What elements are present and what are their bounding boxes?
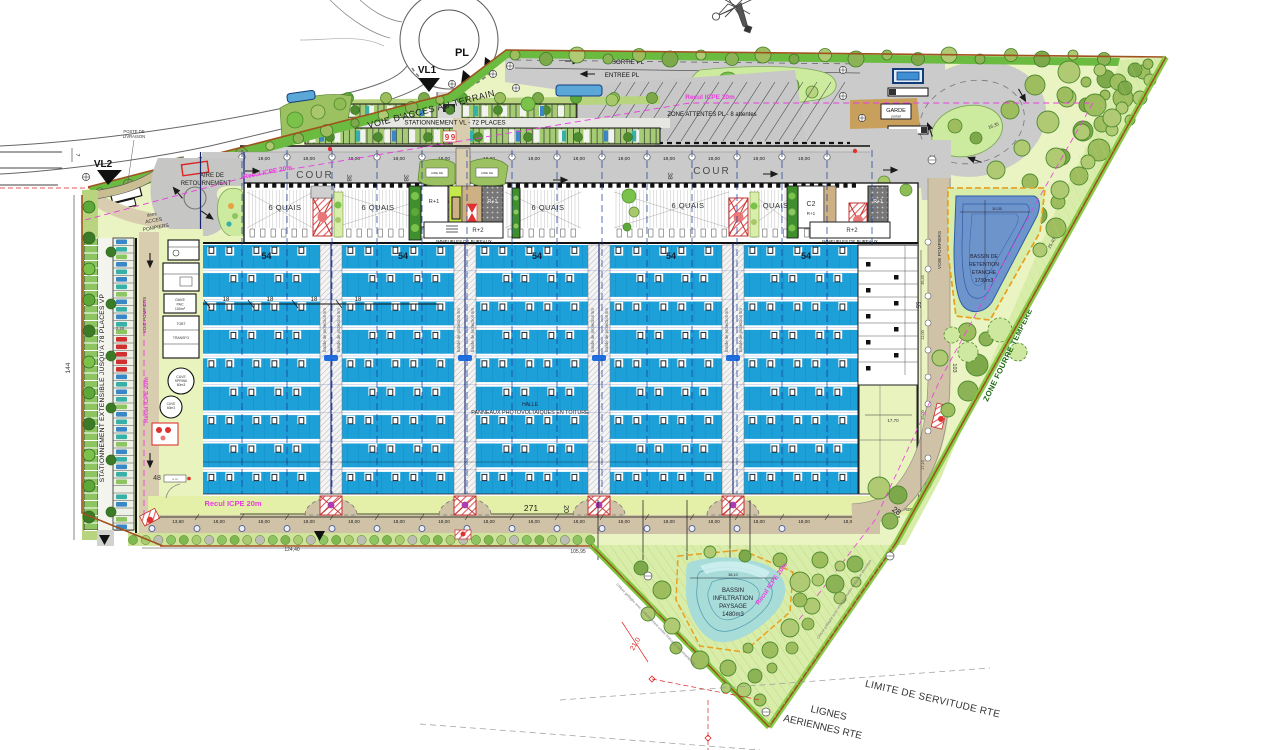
- svg-text:6 QUAIS: 6 QUAIS: [755, 201, 788, 210]
- svg-text:VL1: VL1: [418, 65, 437, 76]
- svg-text:18,00: 18,00: [303, 156, 315, 162]
- svg-text:u m: u m: [172, 477, 178, 481]
- svg-text:AIRE DE: AIRE DE: [200, 173, 224, 179]
- svg-text:18,00: 18,00: [438, 519, 450, 524]
- svg-text:6 QUAIS: 6 QUAIS: [361, 203, 394, 212]
- svg-text:portail: portail: [891, 115, 900, 119]
- svg-text:ZONE ATTENTES PL - 8 attentes: ZONE ATTENTES PL - 8 attentes: [667, 112, 756, 118]
- svg-text:6 QUAIS: 6 QUAIS: [671, 201, 704, 210]
- svg-text:12,00: 12,00: [921, 330, 925, 340]
- svg-text:BASSIN: BASSIN: [722, 588, 744, 594]
- svg-text:124,40: 124,40: [284, 547, 300, 553]
- svg-text:RETENTION: RETENTION: [969, 262, 999, 268]
- svg-text:18,00: 18,00: [753, 519, 765, 524]
- svg-text:Recul ICPE 20m: Recul ICPE 20m: [204, 499, 261, 508]
- svg-text:54: 54: [398, 251, 408, 261]
- svg-text:R+1: R+1: [429, 199, 440, 205]
- svg-text:6 QUAIS: 6 QUAIS: [268, 203, 301, 212]
- svg-text:R+2: R+2: [846, 228, 858, 234]
- svg-text:9: 9: [451, 133, 456, 142]
- svg-text:18: 18: [355, 297, 362, 303]
- svg-text:105,95: 105,95: [570, 549, 586, 555]
- svg-text:PAC: PAC: [176, 303, 184, 307]
- svg-text:bande de protection 5m: bande de protection 5m: [336, 307, 341, 352]
- svg-text:INFILTRATION: INFILTRATION: [713, 596, 753, 602]
- svg-text:38: 38: [402, 174, 409, 182]
- svg-text:TRANSFO: TRANSFO: [173, 336, 190, 340]
- svg-text:GAVE: GAVE: [175, 298, 185, 302]
- svg-text:18,00: 18,00: [753, 156, 765, 162]
- svg-text:144: 144: [65, 362, 72, 373]
- svg-text:18,00: 18,00: [663, 519, 675, 524]
- svg-text:1480m3: 1480m3: [722, 612, 744, 618]
- svg-text:17,70: 17,70: [887, 418, 899, 423]
- svg-text:35,45: 35,45: [921, 275, 925, 285]
- svg-text:18,00: 18,00: [798, 156, 810, 162]
- svg-text:C2: C2: [807, 201, 816, 208]
- svg-text:ETANCHE: ETANCHE: [972, 270, 997, 276]
- svg-text:18,00: 18,00: [528, 156, 540, 162]
- svg-text:20: 20: [562, 505, 569, 513]
- svg-text:54: 54: [532, 251, 542, 261]
- svg-text:HALLE: HALLE: [522, 402, 539, 408]
- svg-text:60m3: 60m3: [177, 383, 186, 387]
- svg-text:150m²: 150m²: [175, 307, 186, 311]
- svg-text:R+1: R+1: [873, 199, 883, 205]
- svg-text:18,00: 18,00: [303, 519, 315, 524]
- svg-text:38: 38: [345, 174, 352, 182]
- svg-text:BASSIN DE: BASSIN DE: [970, 254, 998, 260]
- svg-text:18,00: 18,00: [663, 156, 675, 162]
- svg-text:bande de protection 5m: bande de protection 5m: [456, 307, 461, 352]
- svg-text:6 QUAIS: 6 QUAIS: [531, 203, 564, 212]
- svg-text:55: 55: [914, 302, 920, 309]
- svg-text:PANNEAUX PHOTOVOLTAIQUES EN TO: PANNEAUX PHOTOVOLTAIQUES EN TOITURE: [471, 410, 589, 416]
- svg-text:bande de protection 5m: bande de protection 5m: [604, 307, 609, 352]
- svg-text:18: 18: [267, 297, 274, 303]
- svg-text:48: 48: [153, 475, 161, 482]
- svg-text:18: 18: [311, 297, 318, 303]
- svg-text:R+1: R+1: [807, 211, 816, 216]
- svg-text:Recul ICPE 20m: Recul ICPE 20m: [144, 377, 150, 423]
- svg-text:45,00: 45,00: [921, 410, 925, 420]
- svg-text:PL: PL: [455, 47, 469, 59]
- svg-text:18,00: 18,00: [708, 156, 720, 162]
- svg-text:18,00: 18,00: [618, 156, 630, 162]
- svg-text:18,00: 18,00: [798, 519, 810, 524]
- svg-text:GARDE: GARDE: [886, 108, 906, 114]
- svg-text:7: 7: [74, 153, 80, 156]
- svg-text:18,00: 18,00: [258, 156, 270, 162]
- svg-text:RETOURNEMENT: RETOURNEMENT: [181, 181, 232, 187]
- svg-text:AIRE DE: AIRE DE: [431, 171, 443, 175]
- svg-text:bande de protection 5m: bande de protection 5m: [322, 307, 327, 352]
- svg-text:13,60: 13,60: [172, 519, 184, 524]
- svg-text:18,00: 18,00: [213, 519, 225, 524]
- svg-text:VL2: VL2: [94, 159, 113, 170]
- svg-text:bande de protection 5m: bande de protection 5m: [590, 307, 595, 352]
- svg-text:18,00: 18,00: [348, 519, 360, 524]
- svg-text:18,00: 18,00: [573, 519, 585, 524]
- svg-text:R+2: R+2: [472, 228, 484, 234]
- svg-text:18,00: 18,00: [573, 156, 585, 162]
- svg-text:9: 9: [445, 133, 450, 142]
- svg-text:R+1: R+1: [487, 199, 497, 205]
- svg-text:54: 54: [666, 251, 676, 261]
- svg-text:18,00: 18,00: [708, 519, 720, 524]
- svg-text:COUR: COUR: [693, 166, 730, 177]
- svg-text:18,00: 18,00: [618, 519, 630, 524]
- svg-text:54: 54: [261, 251, 271, 261]
- svg-text:18,00: 18,00: [528, 519, 540, 524]
- svg-text:STATIONNEMENT VL - 72 PLACES: STATIONNEMENT VL - 72 PLACES: [404, 120, 505, 127]
- svg-text:PAYSAGE: PAYSAGE: [719, 604, 747, 610]
- svg-text:30,35: 30,35: [992, 207, 1002, 211]
- svg-text:COUR: COUR: [296, 170, 333, 181]
- svg-text:17,10: 17,10: [921, 460, 925, 470]
- svg-text:AIRE DE: AIRE DE: [481, 171, 493, 175]
- svg-text:LIVRAISON: LIVRAISON: [123, 134, 145, 139]
- svg-text:ENTREE PL: ENTREE PL: [605, 72, 640, 79]
- svg-text:bande de protection 5m: bande de protection 5m: [724, 307, 729, 352]
- svg-text:38: 38: [666, 172, 673, 180]
- svg-text:bande de protection 5m: bande de protection 5m: [470, 307, 475, 352]
- svg-text:18,00: 18,00: [393, 519, 405, 524]
- svg-text:271: 271: [524, 503, 538, 513]
- svg-text:2,20: 2,20: [116, 326, 125, 331]
- svg-text:103: 103: [951, 363, 957, 372]
- svg-text:Recul ICPE 20m: Recul ICPE 20m: [685, 94, 735, 101]
- svg-text:18,00: 18,00: [258, 519, 270, 524]
- svg-text:bande de protection 5m: bande de protection 5m: [738, 307, 743, 352]
- svg-text:18,00: 18,00: [393, 156, 405, 162]
- svg-text:TGBT: TGBT: [176, 322, 185, 326]
- svg-text:VOIE POMPIERS: VOIE POMPIERS: [937, 231, 943, 269]
- svg-text:STATIONNEMENT EXTENSIBLE JUSQ: STATIONNEMENT EXTENSIBLE JUSQU'A 78 PLAC…: [99, 293, 106, 482]
- svg-text:VOIE POMPIERS: VOIE POMPIERS: [142, 297, 147, 334]
- svg-text:18,00: 18,00: [483, 519, 495, 524]
- svg-text:38,10: 38,10: [728, 573, 738, 577]
- svg-text:60m3: 60m3: [167, 406, 175, 410]
- svg-text:18: 18: [223, 297, 230, 303]
- svg-text:54: 54: [801, 251, 811, 261]
- svg-text:1730m3: 1730m3: [975, 278, 994, 284]
